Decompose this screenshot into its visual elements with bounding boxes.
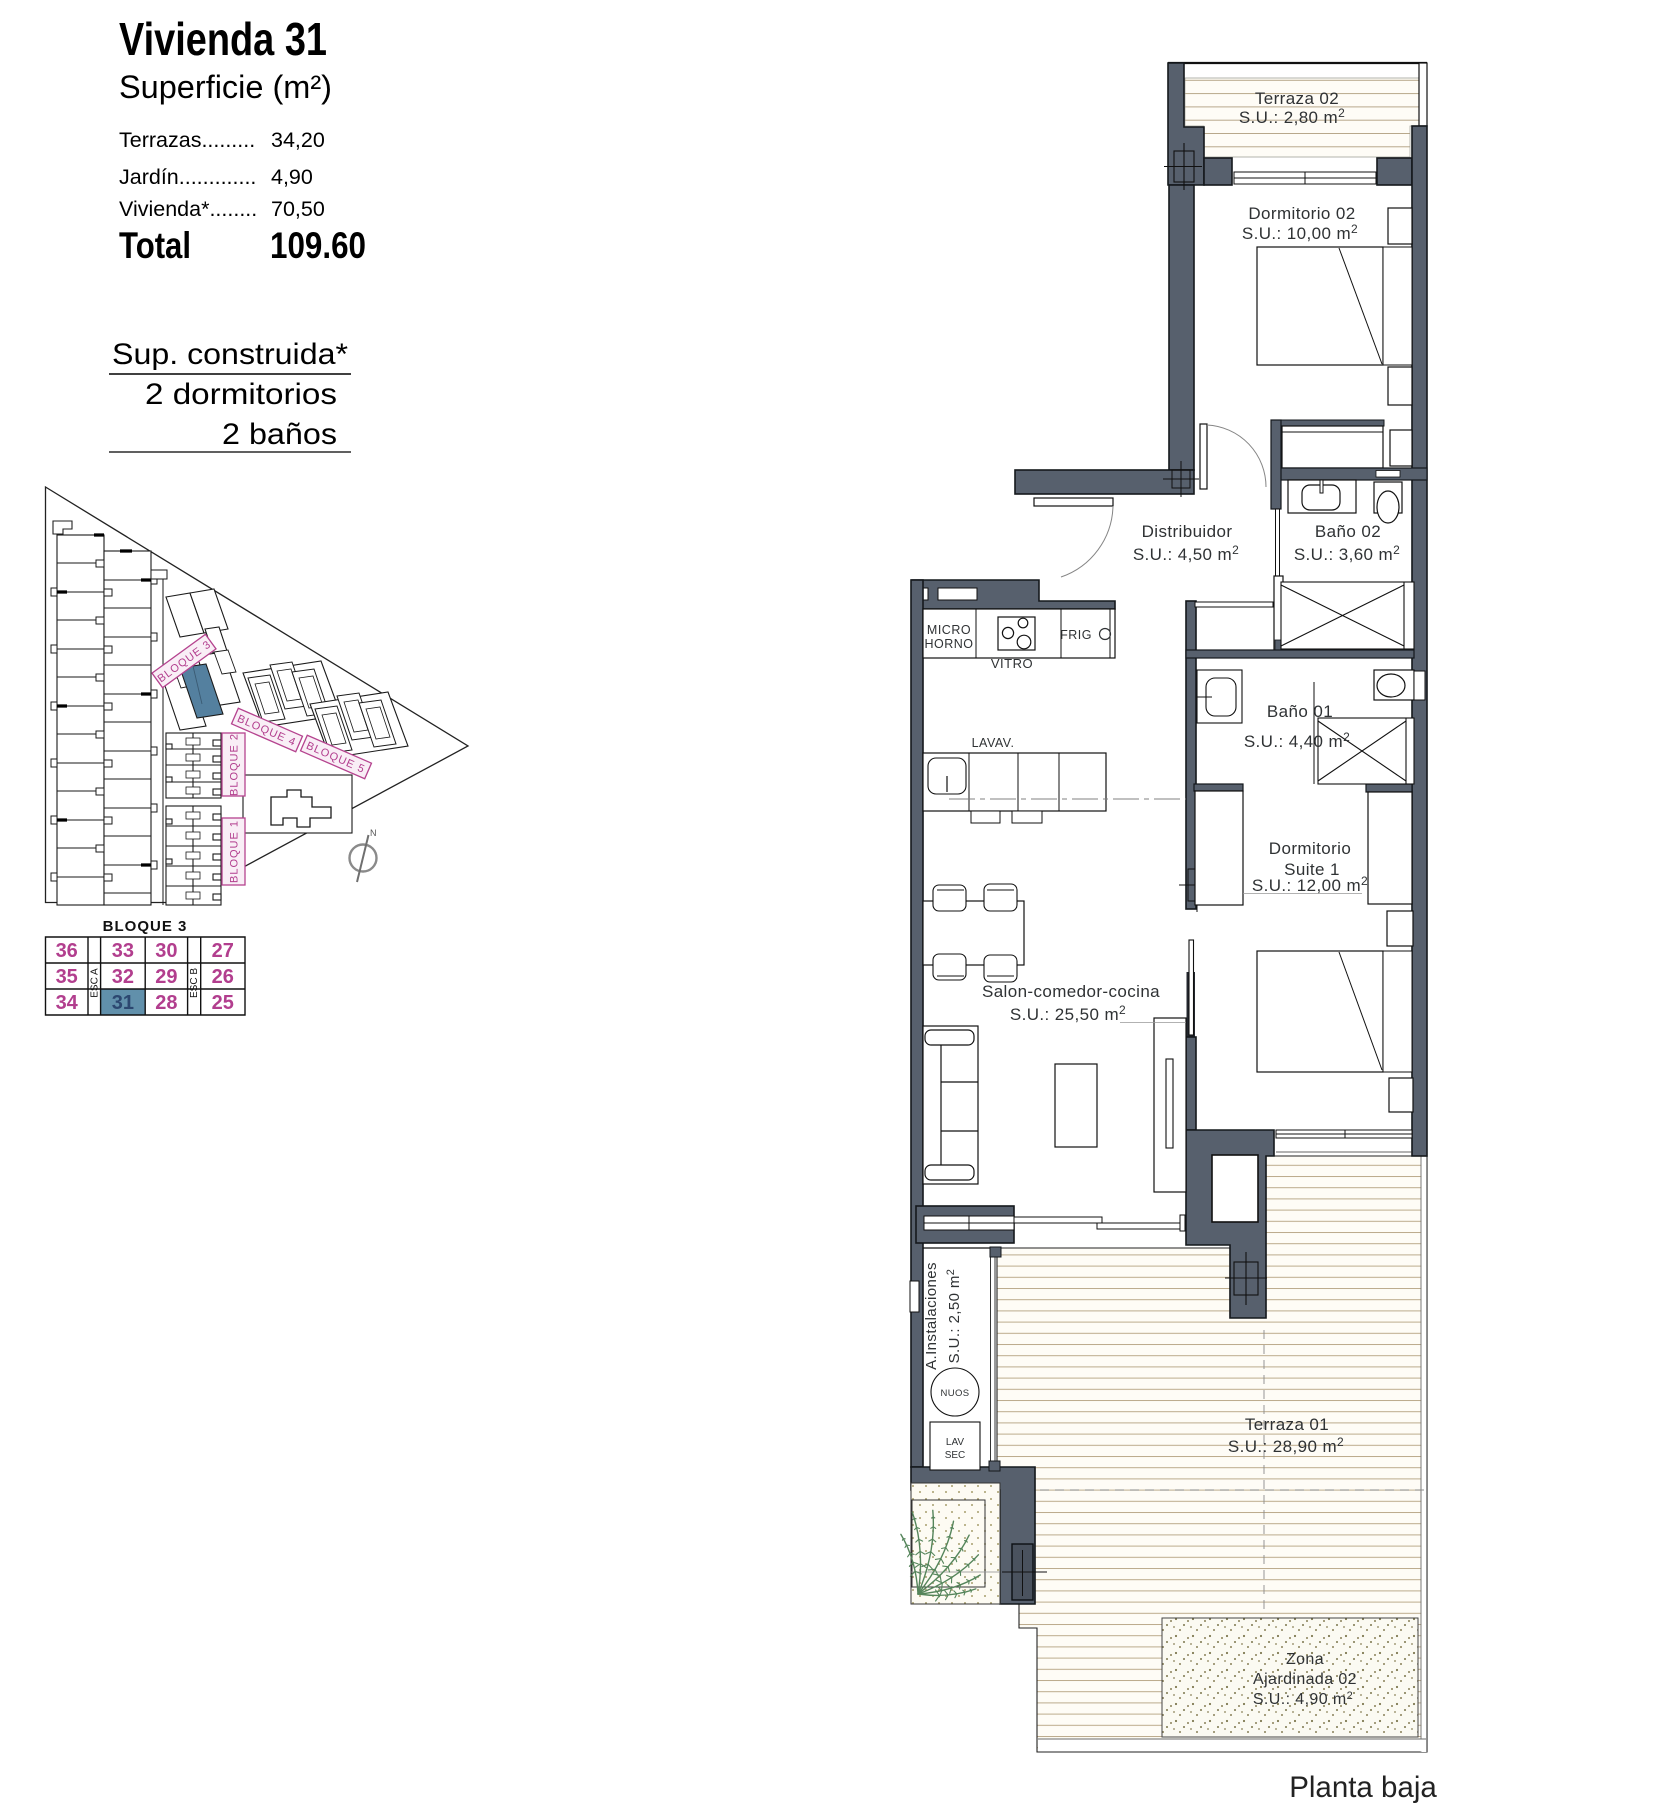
svg-text:30: 30 <box>155 940 177 962</box>
svg-text:36: 36 <box>56 940 78 962</box>
svg-text:Sup. construida*: Sup. construida* <box>112 338 348 371</box>
svg-text:LAV: LAV <box>946 1437 964 1448</box>
svg-text:S.U.: 3,60 m2: S.U.: 3,60 m2 <box>1294 543 1400 564</box>
svg-text:BLOQUE 2: BLOQUE 2 <box>229 733 241 796</box>
svg-text:Planta baja: Planta baja <box>1289 1771 1437 1804</box>
svg-text:S.U.: 10,00 m2: S.U.: 10,00 m2 <box>1242 222 1358 243</box>
svg-text:32: 32 <box>112 966 134 988</box>
svg-text:Vivienda*........: Vivienda*........ <box>119 197 257 221</box>
svg-text:2 dormitorios: 2 dormitorios <box>145 378 337 411</box>
svg-text:Dormitorio: Dormitorio <box>1269 839 1351 858</box>
svg-text:Dormitorio 02: Dormitorio 02 <box>1248 204 1355 223</box>
svg-text:Vivienda 31: Vivienda 31 <box>119 13 327 65</box>
svg-text:S.U.: 28,90 m2: S.U.: 28,90 m2 <box>1228 1435 1344 1456</box>
svg-text:A.Instalaciones: A.Instalaciones <box>923 1262 940 1370</box>
svg-text:4,90: 4,90 <box>271 165 313 189</box>
svg-text:Distribuidor: Distribuidor <box>1142 522 1233 541</box>
svg-text:N: N <box>370 828 377 838</box>
svg-text:35: 35 <box>56 966 78 988</box>
svg-text:ESC B: ESC B <box>189 968 200 998</box>
svg-text:Salon-comedor-cocina: Salon-comedor-cocina <box>982 982 1160 1001</box>
svg-text:Baño 01: Baño 01 <box>1267 702 1333 721</box>
svg-text:S.U.: 4,50 m2: S.U.: 4,50 m2 <box>1133 543 1239 564</box>
svg-text:Ajardinada 02: Ajardinada 02 <box>1253 1671 1357 1688</box>
svg-text:S.U.: 4,90 m2: S.U.: 4,90 m2 <box>1253 1690 1353 1708</box>
svg-text:34,20: 34,20 <box>271 128 325 152</box>
svg-text:29: 29 <box>155 966 177 988</box>
svg-text:S.U.: 25,50 m2: S.U.: 25,50 m2 <box>1010 1003 1126 1024</box>
svg-text:Superficie (m²): Superficie (m²) <box>119 69 332 105</box>
svg-text:NUOS: NUOS <box>940 1388 969 1399</box>
svg-text:VITRO: VITRO <box>991 656 1033 671</box>
svg-text:Baño 02: Baño 02 <box>1315 522 1381 541</box>
svg-text:Terraza 02: Terraza 02 <box>1255 89 1339 108</box>
svg-text:70,50: 70,50 <box>271 197 325 221</box>
svg-text:34: 34 <box>56 992 79 1014</box>
svg-text:S.U.: 4,40 m2: S.U.: 4,40 m2 <box>1244 730 1350 751</box>
svg-text:Total: Total <box>119 225 191 266</box>
svg-text:Terraza 01: Terraza 01 <box>1245 1415 1329 1434</box>
svg-text:Terrazas.........: Terrazas......... <box>119 128 255 152</box>
svg-text:MICRO: MICRO <box>927 623 971 637</box>
svg-text:28: 28 <box>155 992 177 1014</box>
svg-text:33: 33 <box>112 940 134 962</box>
svg-text:ESC A: ESC A <box>89 968 100 998</box>
svg-text:25: 25 <box>212 992 234 1014</box>
svg-text:2 baños: 2 baños <box>222 418 337 451</box>
svg-text:27: 27 <box>212 940 234 962</box>
svg-text:26: 26 <box>212 966 234 988</box>
svg-text:HORNO: HORNO <box>924 637 973 651</box>
svg-text:S.U.: 2,50 m2: S.U.: 2,50 m2 <box>945 1269 963 1364</box>
svg-text:31: 31 <box>112 992 134 1014</box>
svg-text:Jardín.............: Jardín............. <box>119 165 256 189</box>
svg-text:FRIG: FRIG <box>1060 628 1092 642</box>
svg-text:BLOQUE 3: BLOQUE 3 <box>103 918 188 935</box>
svg-text:BLOQUE 1: BLOQUE 1 <box>229 820 241 883</box>
svg-text:S.U.: 2,80 m2: S.U.: 2,80 m2 <box>1239 106 1345 127</box>
svg-text:109.60: 109.60 <box>270 225 366 266</box>
svg-text:SEC: SEC <box>945 1450 966 1461</box>
svg-text:Zona: Zona <box>1286 1651 1324 1668</box>
svg-text:S.U.: 12,00 m2: S.U.: 12,00 m2 <box>1252 874 1368 895</box>
svg-text:LAVAV.: LAVAV. <box>972 736 1015 750</box>
